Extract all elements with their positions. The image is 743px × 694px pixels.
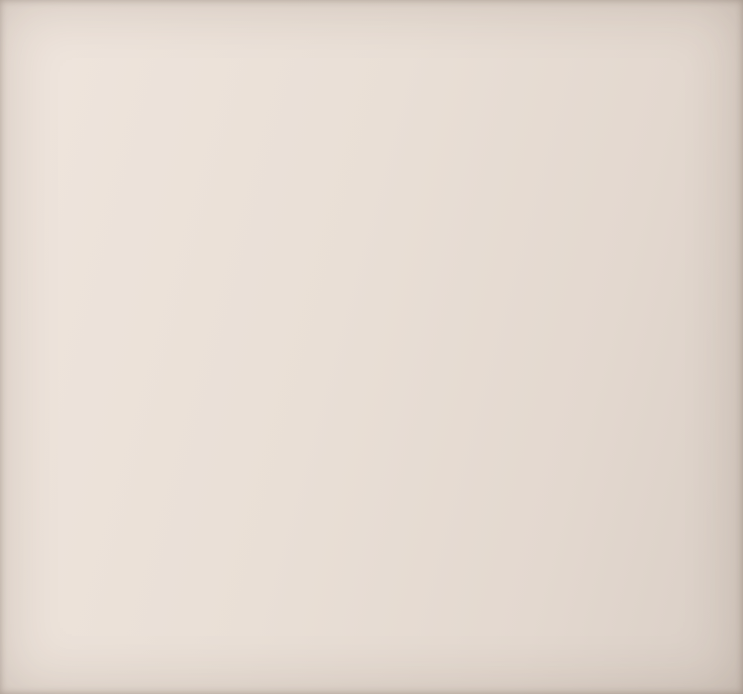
floor-plan-photo: 10,30 6,55 2,20 2,12 0,25 0,35 4,06 3,70… — [0, 0, 743, 694]
paper-background — [0, 0, 743, 694]
